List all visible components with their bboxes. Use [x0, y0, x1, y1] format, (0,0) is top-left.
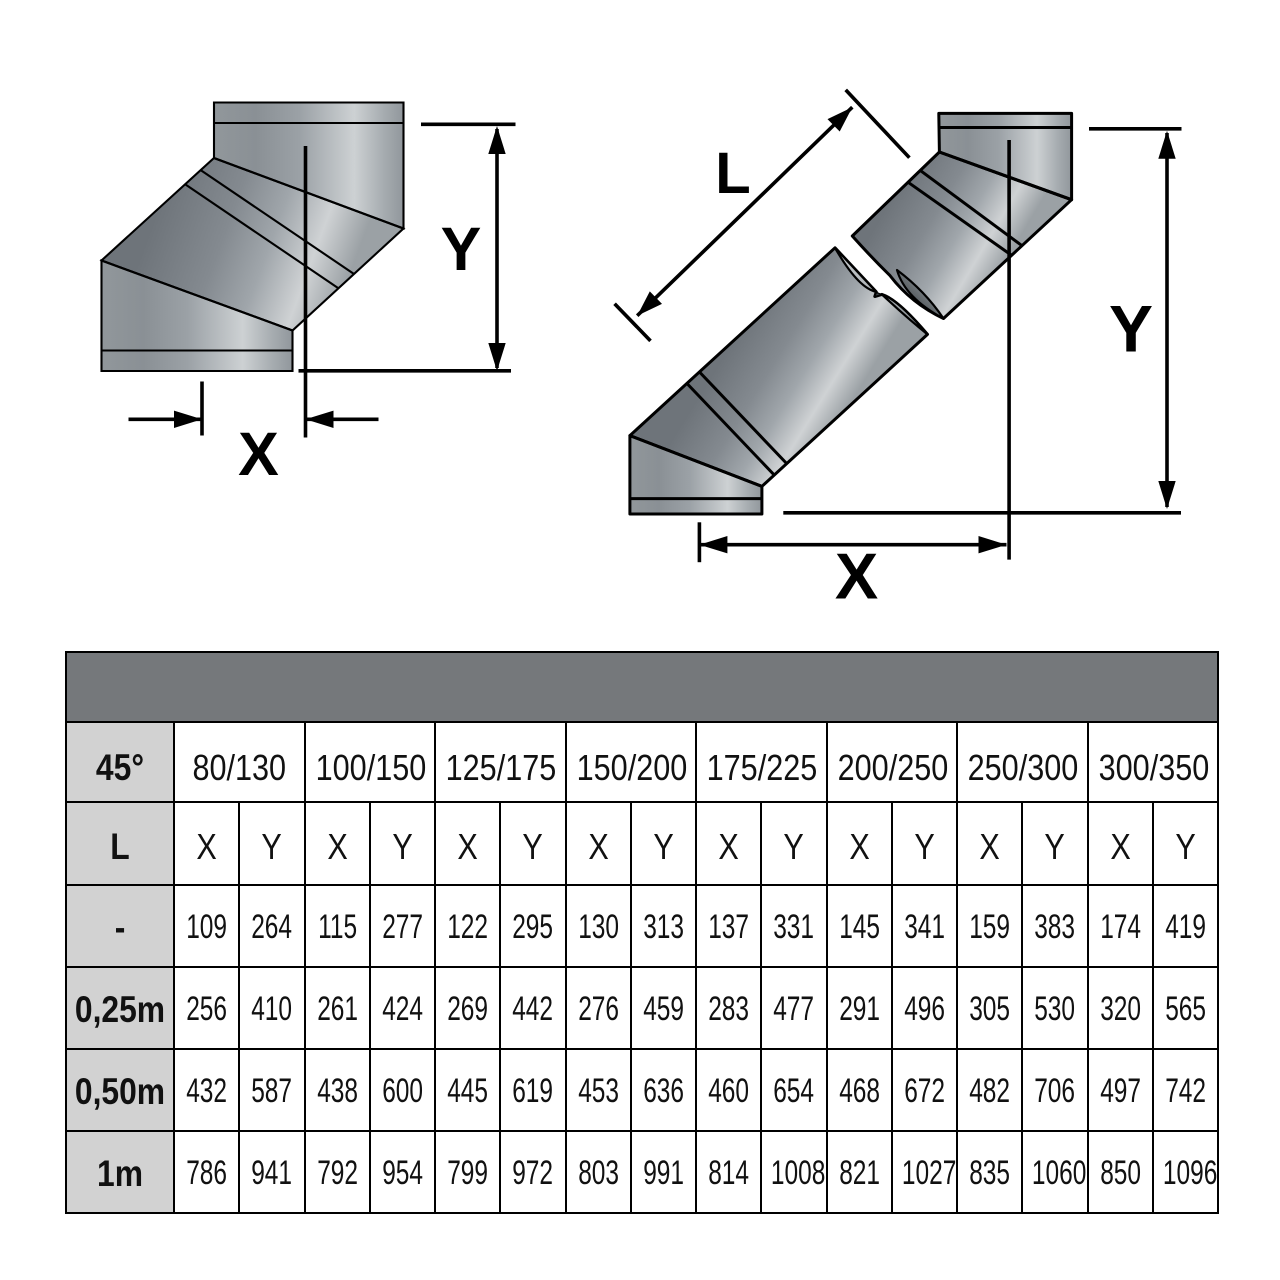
- svg-text:X: X: [238, 420, 279, 488]
- svg-text:Y: Y: [1109, 292, 1153, 366]
- svg-text:Y: Y: [441, 215, 482, 283]
- svg-text:L: L: [715, 141, 750, 206]
- svg-text:X: X: [835, 540, 878, 613]
